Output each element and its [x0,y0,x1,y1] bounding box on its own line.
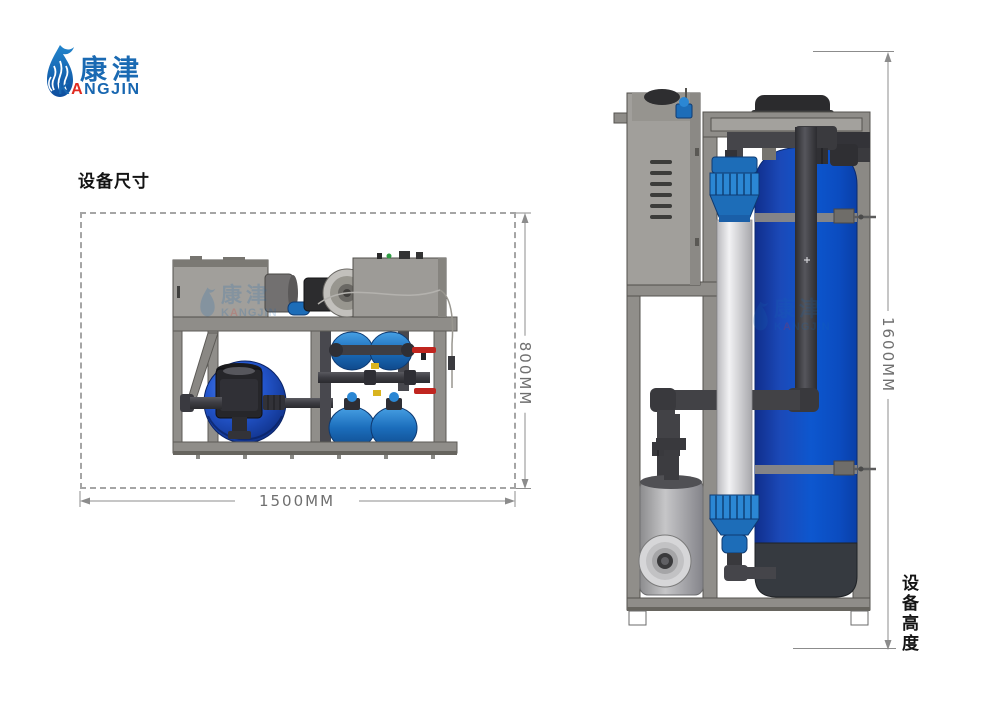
booster-pump [639,414,703,595]
depth-dimension-label: 800MM [516,336,534,413]
control-cabinet-side [614,88,700,285]
dimensions-title: 设备尺寸 [78,167,150,192]
height-dimension-label: 1600MM [879,311,897,399]
kangjin-logo: 康津 KANGJIN [43,41,183,103]
width-dimension-label: 1500MM [235,492,359,510]
logo-latin-text: KANGJIN [58,81,141,99]
control-cabinet-right [353,251,446,317]
page: 康津 KANGJIN 设备尺寸 [0,0,1000,709]
logo-latin-rest: NGJIN [84,81,140,98]
side-view-illustration [612,88,880,650]
height-title: 设备高度 [896,574,921,654]
logo-latin-k: K [58,81,71,98]
logo-latin-a: A [71,81,84,98]
filter-manifold [318,331,436,449]
control-cabinet-front [173,256,268,317]
base-rail [173,442,457,459]
top-rail [173,317,457,331]
front-view-illustration [168,248,460,460]
